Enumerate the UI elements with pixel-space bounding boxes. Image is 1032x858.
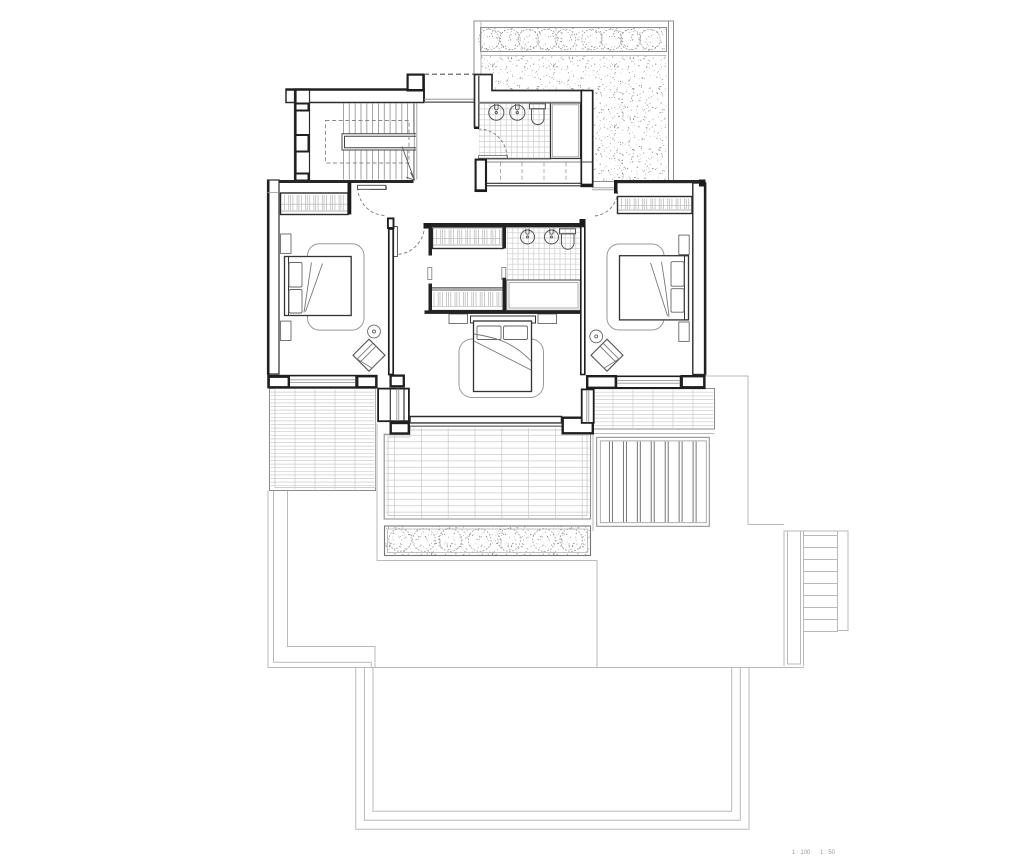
svg-text:1 : 50: 1 : 50 [820,850,836,856]
svg-text:1 : 100: 1 : 100 [792,850,811,856]
